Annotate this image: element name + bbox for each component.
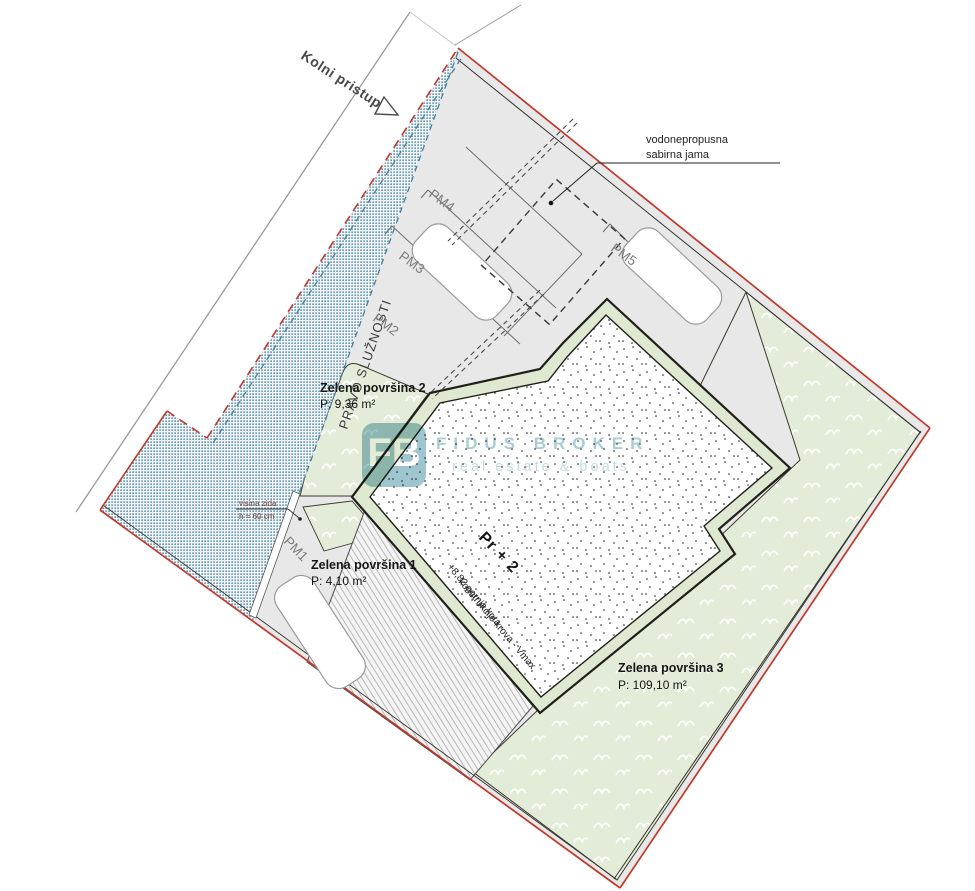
leader-arrow-dot [549,201,554,206]
label-green3-area: P: 109,10 m² [618,678,687,692]
label-pit-line1: vodonepropusna [646,134,729,146]
site-plan-drawing: FB FIDUS BROKER real estate & boats Koln… [0,0,975,891]
watermark-logo-text: FB [367,431,420,475]
label-kolni-pristup: Kolni pristup [298,47,385,111]
watermark-brand: FIDUS BROKER [436,434,649,453]
label-green2-title: Zelena površina 2 [320,381,426,395]
label-green1-title: Zelena površina 1 [311,558,417,572]
road-corner-line [410,12,456,46]
label-green2-area: P: 9,36 m² [320,397,375,411]
label-green1-area: P: 4,10 m² [311,574,366,588]
label-wall-height-1: visina zida [239,499,277,508]
label-wall-height-2: h = 60 cm [239,512,275,521]
label-green3-title: Zelena površina 3 [618,661,724,675]
site-plan-page: FB FIDUS BROKER real estate & boats Koln… [0,0,975,891]
watermark-tagline: real estate & boats [452,459,630,475]
label-pit-line2: sabirna jama [646,149,710,161]
road-edge-top [455,5,521,45]
